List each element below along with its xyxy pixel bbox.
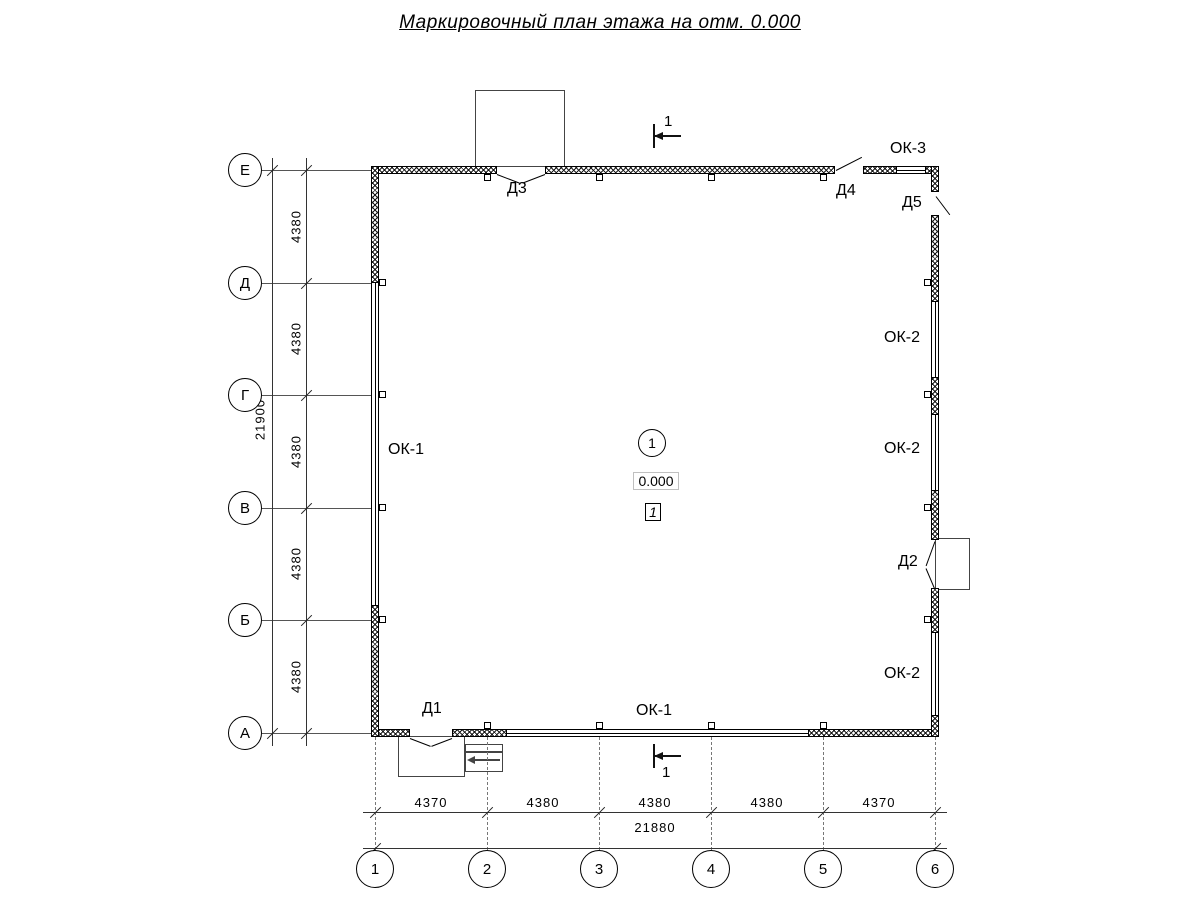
label-door-d3: Д3 <box>507 180 527 198</box>
zone-value: 1 <box>649 504 657 520</box>
pilaster-left-d <box>379 279 386 286</box>
dim-text-bottom-segment: 4380 <box>615 795 695 810</box>
wall-left-upper-segment <box>371 166 379 283</box>
grid-row-label: Д <box>240 275 250 292</box>
dim-line-bottom-segments <box>363 812 947 813</box>
window-ok2-upper <box>931 302 939 377</box>
pilaster-top-5 <box>820 174 827 181</box>
grid-bubble-col-1: 1 <box>356 850 394 888</box>
pilaster-right-g <box>924 391 931 398</box>
section-mark-bottom-label: 1 <box>662 764 670 781</box>
window-ok2-middle <box>931 415 939 490</box>
dim-text-bottom-segment: 4380 <box>727 795 807 810</box>
pilaster-top-3 <box>596 174 603 181</box>
grid-bubble-col-3: 3 <box>580 850 618 888</box>
top-porch-outline <box>475 90 565 167</box>
axis-line-col-3 <box>599 737 600 850</box>
label-window-ok1-bottom: ОК-1 <box>636 702 672 720</box>
right-porch-outline <box>935 538 970 590</box>
pilaster-top-4 <box>708 174 715 181</box>
grid-col-label: 6 <box>931 861 939 878</box>
wall-top-right-segment <box>863 166 897 174</box>
axis-line-col-4 <box>711 737 712 850</box>
label-door-d4: Д4 <box>836 182 856 200</box>
wall-right-segment-3 <box>931 377 939 415</box>
label-door-d5: Д5 <box>902 194 922 212</box>
steps-tread-line <box>466 751 502 753</box>
grid-bubble-row-e: Е <box>228 153 262 187</box>
grid-col-label: 1 <box>371 861 379 878</box>
pilaster-right-v <box>924 504 931 511</box>
wall-right-lower-stub <box>931 715 939 737</box>
wall-left-lower-segment <box>371 605 379 737</box>
pilaster-left-v <box>379 504 386 511</box>
axis-line-col-5 <box>823 737 824 850</box>
grid-bubble-col-2: 2 <box>468 850 506 888</box>
pilaster-right-b <box>924 616 931 623</box>
pilaster-bottom-4 <box>708 722 715 729</box>
grid-row-label: Б <box>240 612 250 629</box>
axis-line-row-d <box>262 283 371 284</box>
elevation-mark: 0.000 <box>633 472 679 490</box>
label-door-d1: Д1 <box>422 700 442 718</box>
steps-direction-arrow-head <box>467 756 475 764</box>
label-window-ok1-left: ОК-1 <box>388 441 424 459</box>
label-door-d2: Д2 <box>898 553 918 571</box>
window-ok2-lower <box>931 633 939 715</box>
door-d2-leaf-lower <box>926 568 936 590</box>
grid-bubble-row-a: А <box>228 716 262 750</box>
label-window-ok2-lower: ОК-2 <box>884 665 920 683</box>
dim-text-left-segment: 4380 <box>289 412 304 492</box>
door-d5-leaf <box>936 196 951 215</box>
elevation-value: 0.000 <box>638 473 673 489</box>
axis-line-row-v <box>262 508 371 509</box>
grid-bubble-row-b: Б <box>228 603 262 637</box>
door-d2-leaf-upper <box>926 541 936 566</box>
axis-line-row-b <box>262 620 371 621</box>
dim-text-bottom-segment: 4380 <box>503 795 583 810</box>
dim-line-left-total <box>272 158 273 746</box>
wall-right-segment-2 <box>931 215 939 302</box>
grid-bubble-col-5: 5 <box>804 850 842 888</box>
grid-bubble-col-4: 4 <box>692 850 730 888</box>
grid-row-label: Е <box>240 162 250 179</box>
wall-right-segment-4 <box>931 490 939 540</box>
label-window-ok3: ОК-3 <box>890 140 926 158</box>
pilaster-bottom-3 <box>596 722 603 729</box>
grid-bubble-row-d: Д <box>228 266 262 300</box>
pilaster-bottom-2 <box>484 722 491 729</box>
grid-bubble-row-v: В <box>228 491 262 525</box>
grid-row-label: В <box>240 500 250 517</box>
axis-line-col-6 <box>935 737 936 850</box>
dim-text-left-segment: 4380 <box>289 524 304 604</box>
grid-col-label: 2 <box>483 861 491 878</box>
axis-line-col-1 <box>375 737 376 850</box>
label-window-ok2-middle: ОК-2 <box>884 440 920 458</box>
pilaster-left-g <box>379 391 386 398</box>
bottom-porch-outline <box>398 736 465 777</box>
grid-bubble-row-g: Г <box>228 378 262 412</box>
grid-col-label: 3 <box>595 861 603 878</box>
wall-top-left-segment <box>371 166 497 174</box>
dim-text-bottom-total: 21880 <box>615 820 695 835</box>
grid-row-label: Г <box>241 387 249 404</box>
dim-text-bottom-segment: 4370 <box>839 795 919 810</box>
floor-plan-drawing: Маркировочный план этажа на отм. 0.000 <box>0 0 1200 900</box>
pilaster-left-b <box>379 616 386 623</box>
grid-col-label: 5 <box>819 861 827 878</box>
door-d4-leaf <box>836 157 862 171</box>
pilaster-right-d <box>924 279 931 286</box>
section-mark-top-label: 1 <box>664 113 672 130</box>
grid-col-label: 4 <box>707 861 715 878</box>
grid-bubble-col-6: 6 <box>916 850 954 888</box>
window-ok3 <box>897 166 925 174</box>
zone-mark: 1 <box>645 503 661 521</box>
wall-top-middle-segment <box>545 166 835 174</box>
wall-right-corner-stub <box>931 166 939 192</box>
room-number: 1 <box>648 435 656 451</box>
wall-bottom-segment-2 <box>452 729 507 737</box>
wall-bottom-right-segment <box>808 729 939 737</box>
pilaster-bottom-5 <box>820 722 827 729</box>
axis-line-col-2 <box>487 737 488 850</box>
section-mark-bottom-arrowhead <box>654 752 663 760</box>
drawing-title: Маркировочный план этажа на отм. 0.000 <box>0 12 1200 34</box>
window-ok1-left <box>371 283 379 605</box>
window-ok1-bottom <box>507 729 808 737</box>
label-window-ok2-upper: ОК-2 <box>884 329 920 347</box>
dim-text-left-segment: 4380 <box>289 299 304 379</box>
grid-row-label: А <box>240 725 250 742</box>
axis-line-row-a <box>262 733 371 734</box>
wall-right-segment-5 <box>931 588 939 633</box>
pilaster-top-2 <box>484 174 491 181</box>
section-mark-top-arrowhead <box>654 132 663 140</box>
dim-line-left-segments <box>306 158 307 746</box>
axis-line-row-e <box>262 170 371 171</box>
dim-text-bottom-segment: 4370 <box>391 795 471 810</box>
dim-text-left-segment: 4380 <box>289 637 304 717</box>
dim-text-left-segment: 4380 <box>289 187 304 267</box>
room-number-bubble: 1 <box>638 429 666 457</box>
axis-line-row-g <box>262 395 371 396</box>
dim-line-bottom-total <box>363 848 947 849</box>
